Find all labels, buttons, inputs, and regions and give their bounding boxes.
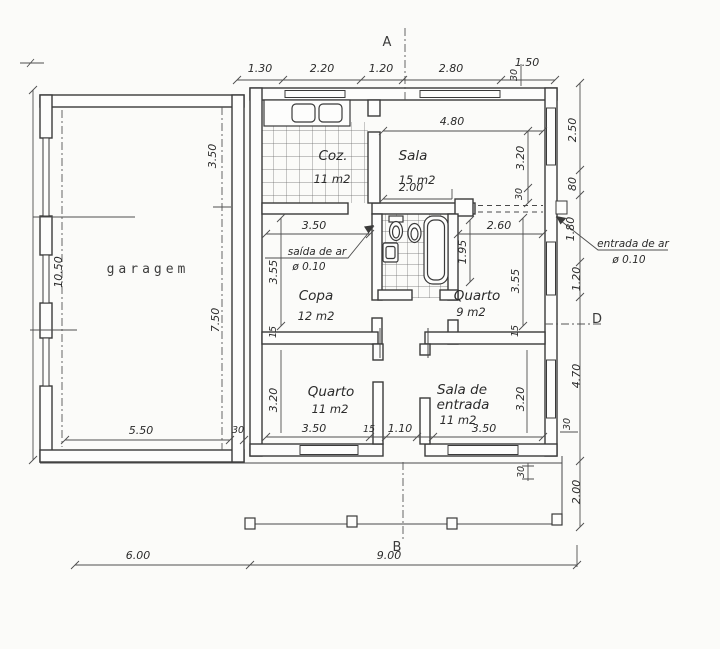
garage-window-1 (43, 138, 49, 216)
room-quarto11-area: 11 m2 (312, 402, 349, 416)
room-entrada-name2: entrada (437, 397, 490, 413)
garage-bottom-wall (40, 450, 244, 462)
room-garagem: garagem (107, 262, 190, 277)
dim-bottomrow-3: 15 (363, 424, 375, 435)
marker-d: D (592, 312, 602, 327)
wall-dashed-opening (478, 206, 543, 213)
dim-bath-195: 1.95 (456, 240, 469, 265)
washbasin-inner (386, 247, 395, 259)
room-coz-name: Coz. (318, 148, 347, 164)
dim-right-4: 1.20 (570, 267, 583, 292)
saida-ar-label-1: saída de ar (288, 246, 347, 258)
garage-left-wall-seg3 (40, 303, 52, 338)
dim-right-5: 4.70 (570, 364, 583, 389)
floor-plan-page: A B D 1.30 2.20 1.20 2.80 1.50 30 2.50 8… (0, 0, 720, 649)
dim-left-1: 10.50 (52, 256, 65, 288)
dim-garage-4: 30 (232, 425, 244, 436)
sink-basin-right (319, 104, 342, 122)
dim-right-6: 30 (562, 418, 573, 430)
dim-bottomrow-2: 3.50 (302, 422, 327, 435)
porch-post-2 (347, 516, 357, 527)
dim-top-1: 1.30 (248, 62, 273, 75)
room-entrada-name1: Sala de (437, 382, 487, 398)
porch-post-3 (447, 518, 457, 529)
sala-right-window (547, 108, 556, 165)
porch-post-1 (245, 518, 255, 529)
wall-quarto9-entrada (425, 332, 545, 344)
dim-top-6: 30 (509, 69, 520, 81)
garage-window-2 (43, 255, 49, 303)
entrada-ar-label-2: ø 0.10 (611, 254, 645, 266)
dim-right-3: 1.80 (564, 217, 577, 242)
dim-right-1: 2.50 (566, 118, 579, 143)
dim-top-4: 2.80 (439, 62, 464, 75)
wall-coz-sala (368, 132, 380, 203)
kitchen-tile-floor (262, 122, 368, 203)
dim-top-3: 1.20 (369, 62, 394, 75)
dim-sala-1: 4.80 (440, 115, 465, 128)
room-coz-area: 11 m2 (314, 172, 351, 186)
dim-copa-3: 15 (268, 326, 279, 338)
dim-sala-2: 3.20 (514, 146, 527, 171)
room-quarto9-name: Quarto (454, 288, 501, 304)
toilet-bowl-inner (393, 226, 400, 238)
air-inlet-duct (556, 201, 567, 214)
wall-copa-quarto11 (262, 332, 378, 344)
dim-copa-2: 3.55 (267, 260, 280, 285)
room-copa-name: Copa (299, 288, 334, 304)
entrada-window (547, 360, 556, 418)
kitchen-window (285, 91, 345, 98)
room-entrada-area: 11 m2 (440, 413, 477, 427)
dim-bottomrow-6: 3.20 (514, 387, 527, 412)
dim-sala-3: 30 (514, 188, 525, 200)
saida-ar-label-2: ø 0.10 (291, 261, 325, 273)
right-dim-chain (560, 79, 584, 531)
bidet-inner (411, 228, 418, 240)
hall-left-wall-stub (373, 344, 383, 360)
garage-width-dim (61, 436, 248, 444)
dim-bottomrow-1: 3.20 (267, 388, 280, 413)
garage-top-wall (40, 95, 244, 107)
room-quarto9-area: 9 m2 (456, 305, 486, 319)
dim-quarto9-1: 2.60 (487, 219, 512, 232)
sala-top-window (420, 91, 500, 98)
garage-right-wall (232, 95, 244, 462)
dim-quarto9-2: 3.55 (509, 269, 522, 294)
dim-porch-1: 30 (516, 466, 527, 478)
room-sala-name: Sala (399, 148, 428, 164)
room-quarto11-name: Quarto (308, 384, 355, 400)
entrada-ar-label-1: entrada de ar (597, 238, 669, 250)
dim-quarto9-3: 15 (510, 325, 521, 337)
top-left-stub-dim (20, 59, 44, 67)
garage-left-wall-seg2 (40, 216, 52, 255)
entrada-bottom-window (448, 446, 518, 455)
dim-top-2: 2.20 (310, 62, 335, 75)
garage-left-wall-seg1 (40, 95, 52, 138)
dim-copa-1: 3.50 (302, 219, 327, 232)
dim-top-5: 1.50 (515, 56, 540, 69)
dim-garage-1: 3.50 (206, 144, 219, 169)
sink-basin-left (292, 104, 315, 122)
bathtub-inner (428, 220, 445, 280)
dim-bottom-1: 6.00 (126, 549, 151, 562)
quarto11-window (300, 446, 358, 455)
dim-right-2: 80 (566, 177, 579, 191)
dim-bottomrow-4: 1.10 (388, 422, 413, 435)
kitchen-sink-counter (264, 100, 350, 126)
wall-coz-sala-stub (368, 100, 380, 116)
bath-bottom-wall-left (378, 290, 412, 300)
porch (40, 456, 562, 529)
wall-coz-copa (262, 203, 348, 214)
dim-right-7: 2.00 (570, 480, 583, 505)
dim-garage-3: 5.50 (129, 424, 154, 437)
house-left-wall (250, 88, 262, 456)
garage-window-3 (43, 338, 49, 386)
floor-plan-drawing: A B D 1.30 2.20 1.20 2.80 1.50 30 2.50 8… (0, 0, 720, 649)
labels: A B D 1.30 2.20 1.20 2.80 1.50 30 2.50 8… (52, 35, 669, 562)
sala-width-dim (379, 127, 547, 135)
porch-post-4 (552, 514, 562, 525)
dim-sala-4: 2.00 (399, 181, 424, 194)
dim-garage-2: 7.50 (209, 308, 222, 333)
marker-a: A (383, 35, 392, 50)
room-copa-area: 12 m2 (298, 309, 335, 323)
quarto9-window (547, 242, 556, 295)
dim-bottom-2: 9.00 (377, 549, 402, 562)
